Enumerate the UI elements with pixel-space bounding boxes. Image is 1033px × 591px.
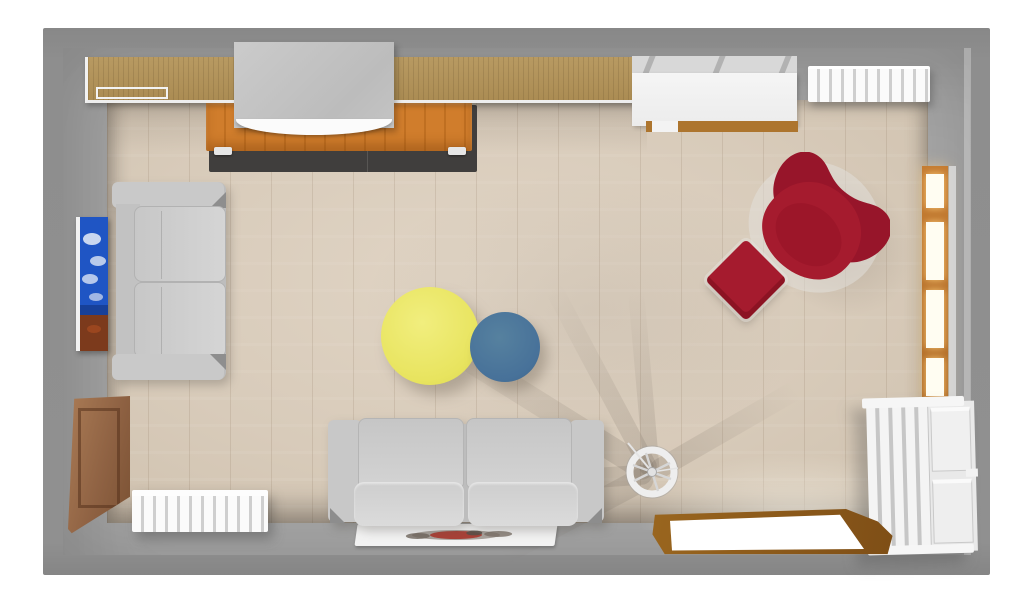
window-right[interactable]: [922, 166, 948, 404]
white-sideboard[interactable]: [632, 73, 797, 126]
painting[interactable]: [76, 217, 108, 351]
room-render: [0, 0, 1033, 591]
plinth-notch: [652, 121, 678, 132]
spinning-wheel[interactable]: [622, 442, 682, 502]
sofa-left[interactable]: [112, 182, 228, 380]
coffee-table-blue[interactable]: [470, 312, 540, 382]
tv-screen-box[interactable]: [234, 42, 394, 128]
radiator-top-right[interactable]: [808, 66, 930, 102]
coffee-table-yellow[interactable]: [381, 287, 479, 385]
sideboard-foot: [448, 147, 466, 155]
white-sideboard-top: [632, 56, 797, 74]
sideboard-foot: [214, 147, 232, 155]
sofa-bottom[interactable]: [328, 416, 604, 528]
painting-canvas: [76, 217, 108, 351]
window-sill: [949, 166, 956, 404]
radiator-bottom-left[interactable]: [132, 490, 268, 532]
